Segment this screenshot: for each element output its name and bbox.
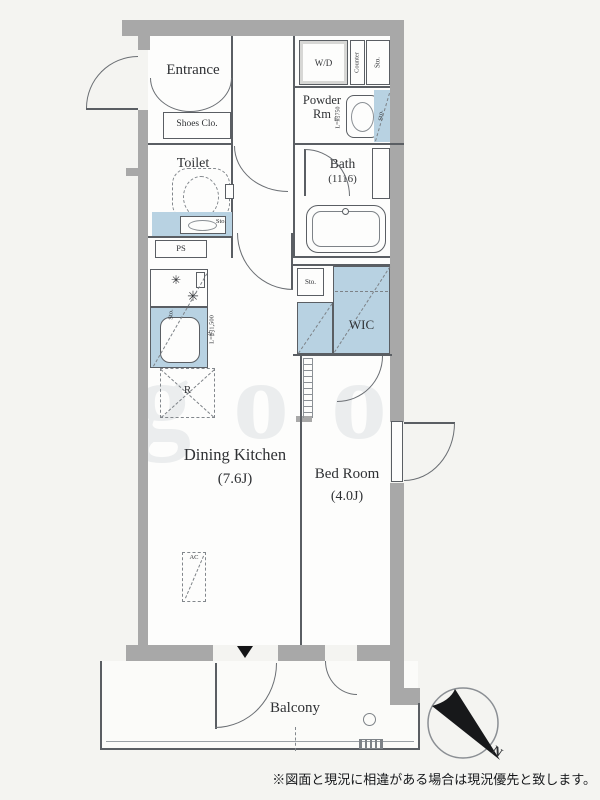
floor-plan-canvas: goo Entrance Shoes Clo. Toilet Sto. PS W… xyxy=(0,0,600,800)
counter-label: Counter xyxy=(354,41,363,85)
room-label-bedroom: Bed Room xyxy=(303,466,391,483)
partition-powder-bath xyxy=(293,143,404,145)
stove-burner-icon: ✳ xyxy=(168,274,184,288)
refrigerator-label: R xyxy=(160,384,215,397)
kitchen-length-label: L=約1,500 xyxy=(209,302,218,358)
room-label-dining-kitchen: Dining Kitchen xyxy=(160,446,310,465)
kitchen-sink xyxy=(160,317,200,363)
balcony-drain-circle xyxy=(363,713,376,726)
bedroom-size-label: (4.0J) xyxy=(303,489,391,505)
bathtub-inner xyxy=(312,211,380,247)
wall-right-upper xyxy=(390,20,404,422)
balcony-drain-grate xyxy=(359,739,383,749)
wall-right-lower xyxy=(390,483,404,705)
balcony-rail-left xyxy=(100,661,102,750)
wic-hanger-line xyxy=(335,291,388,292)
wall-entry-jamb xyxy=(138,36,150,50)
bedroom-side-door-arc xyxy=(404,423,455,481)
partition-bath-bottom xyxy=(293,256,390,258)
wall-bottom-right xyxy=(357,645,404,661)
partition-hall-right xyxy=(293,36,295,258)
partition-entrance-toilet xyxy=(148,143,233,145)
partition-wd-powder xyxy=(293,86,390,88)
powder-sink-length-label: L=約750 xyxy=(336,96,345,140)
balcony-divider-dashes xyxy=(295,727,296,751)
front-door-leaf xyxy=(86,108,138,110)
toilet-paper-holder xyxy=(225,184,234,199)
front-door-arc xyxy=(86,56,138,108)
powder-sink-basin xyxy=(351,102,374,132)
pipe-space-label: PS xyxy=(155,244,207,254)
wall-top xyxy=(122,20,404,36)
bedroom-side-door-leaf xyxy=(391,421,403,482)
wall-bottom-mid xyxy=(278,645,325,661)
disclaimer-text: ※図面と現況に相違がある場合は現況優先と致します。 xyxy=(180,769,596,788)
bathtub-faucet xyxy=(342,208,349,215)
washer-dryer-label: W/D xyxy=(299,58,348,68)
bath-ledge xyxy=(372,148,390,199)
room-label-wic: WIC xyxy=(335,318,388,333)
wall-left xyxy=(138,110,148,661)
partition-hatch-strip xyxy=(303,358,313,418)
toilet-storage-label: Sto. xyxy=(210,218,232,225)
wall-bottom-left xyxy=(126,645,213,661)
partition-toilet-bottom xyxy=(148,236,233,238)
dining-kitchen-size-label: (7.6J) xyxy=(160,471,310,488)
kitchen-storage-label: Sto. xyxy=(168,305,177,325)
storage-top-label: Sto. xyxy=(374,51,383,75)
room-label-entrance: Entrance xyxy=(153,62,233,79)
storage-mid-label: Sto. xyxy=(297,278,324,286)
shoes-closet-label: Shoes Clo. xyxy=(163,119,231,130)
partition-dk-bedroom xyxy=(300,356,302,645)
entry-direction-marker xyxy=(237,646,253,658)
wall-left-stub xyxy=(126,168,138,176)
powder-storage-label: Sto. xyxy=(378,104,387,128)
